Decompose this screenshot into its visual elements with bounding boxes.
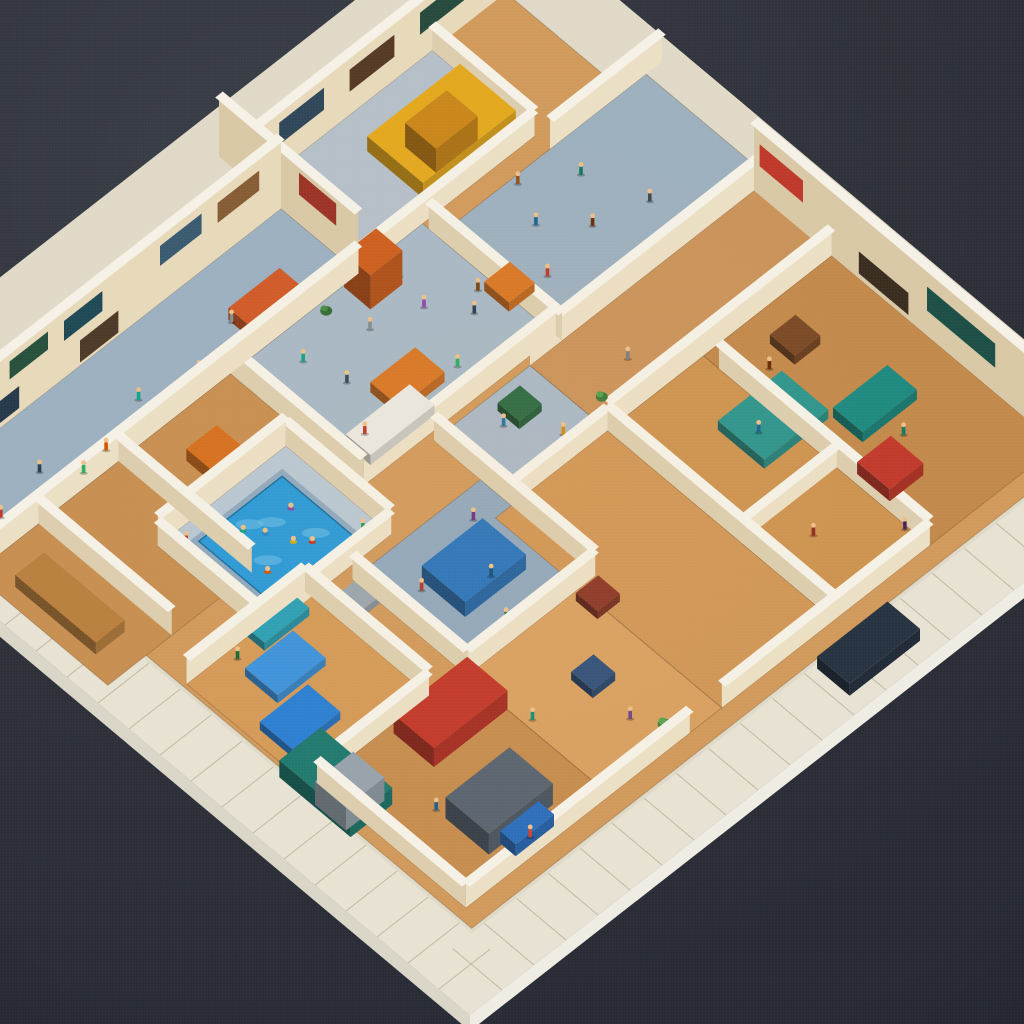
diorama-scene: Photograph-style render of a miniature i…: [0, 0, 1024, 1024]
diorama-render: [0, 0, 1024, 1024]
